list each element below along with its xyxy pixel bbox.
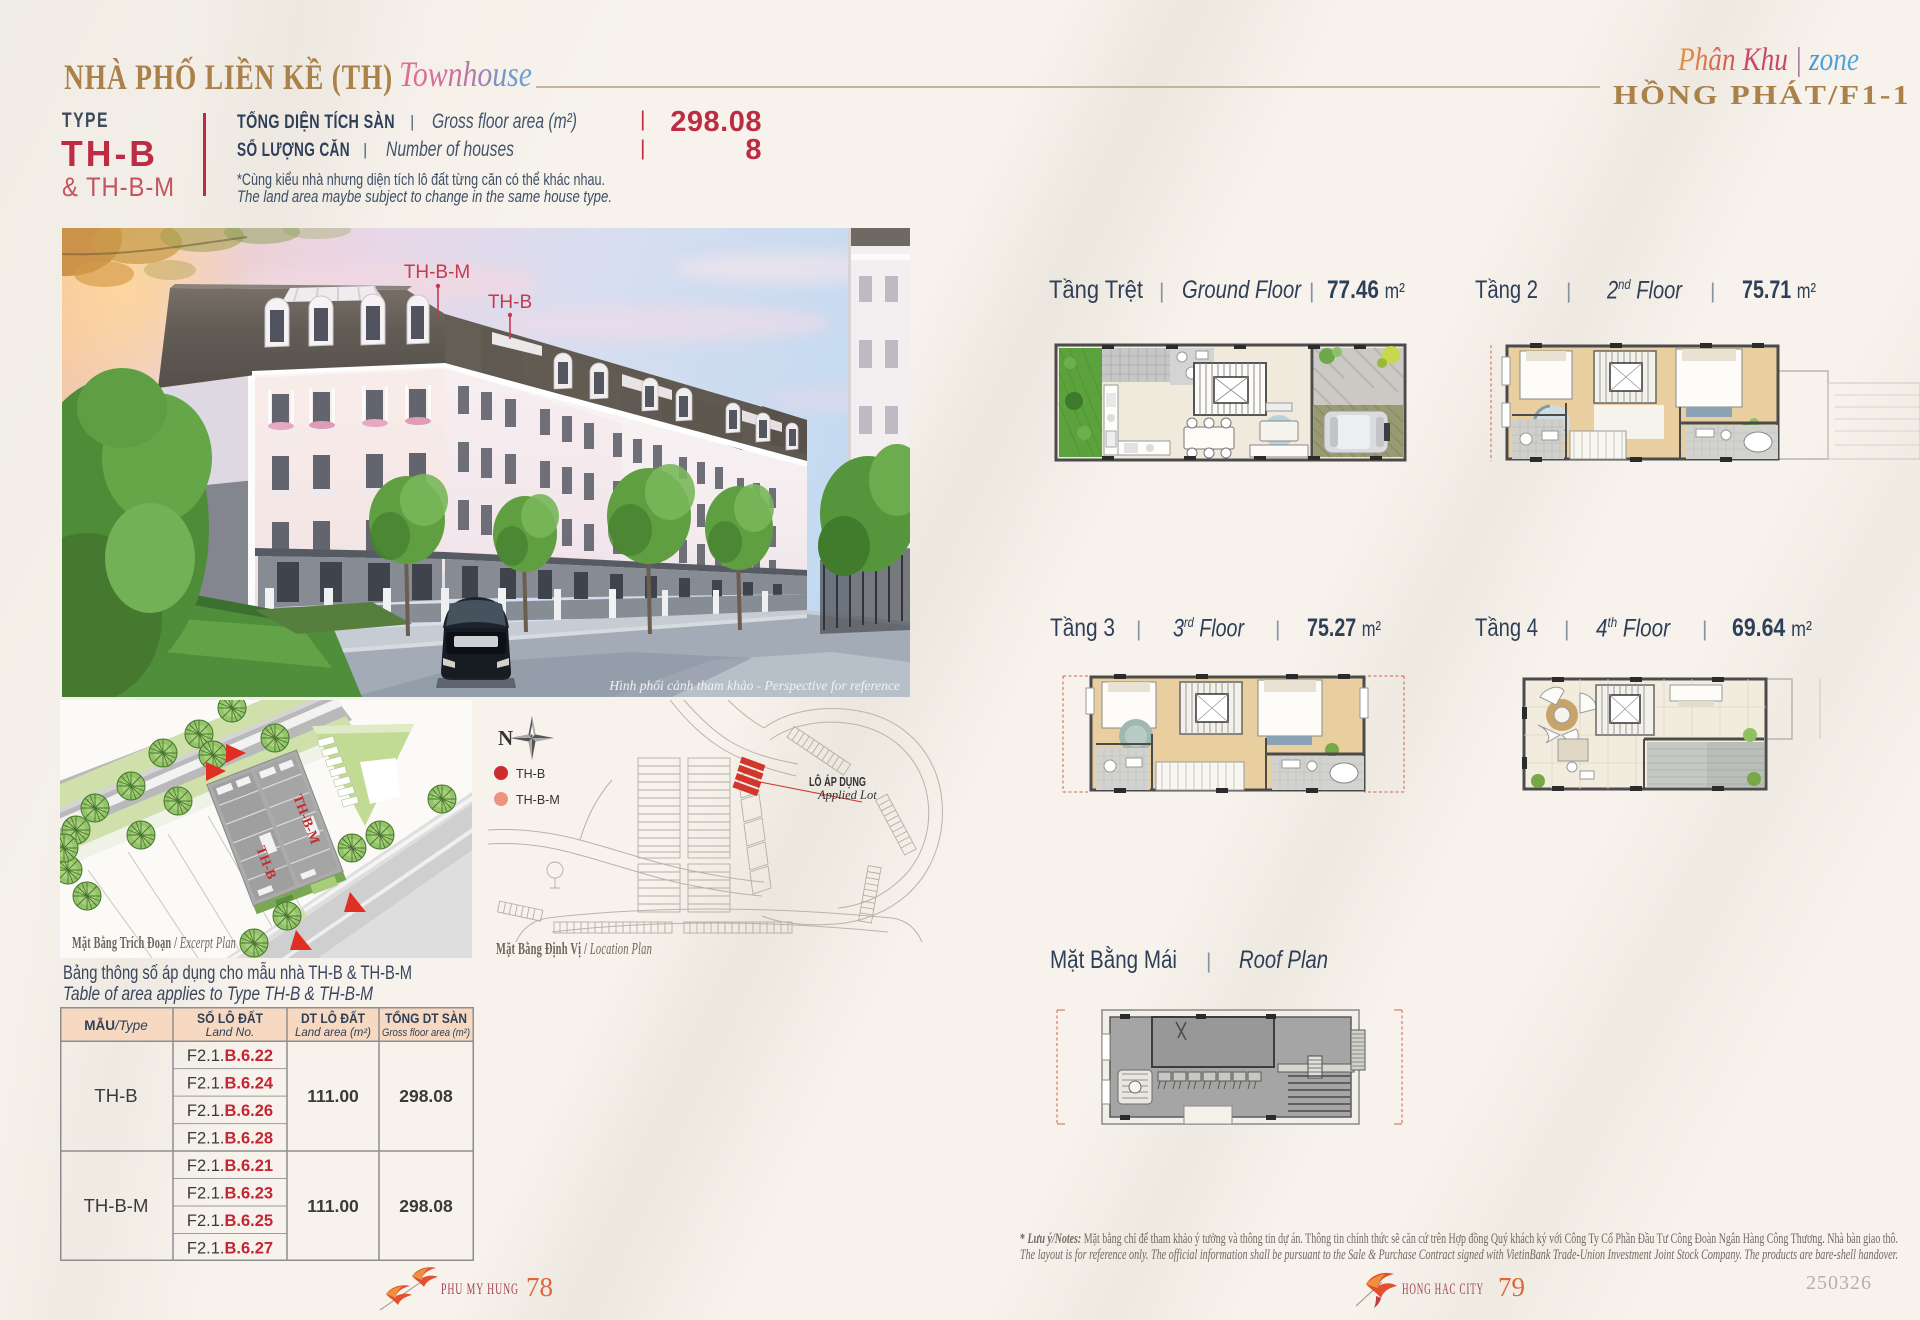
svg-text:F2.1.B.6.23: F2.1.B.6.23	[187, 1185, 273, 1203]
svg-text:TH-B-M: TH-B-M	[84, 1195, 149, 1216]
svg-text:298.08: 298.08	[399, 1196, 453, 1216]
svg-text:F2.1.B.6.27: F2.1.B.6.27	[187, 1240, 273, 1258]
svg-text:TH-B: TH-B	[516, 767, 545, 781]
svg-text:Hình phối cảnh tham khảo - Per: Hình phối cảnh tham khảo - Perspective f…	[608, 678, 900, 693]
svg-text:TH-B-M: TH-B-M	[404, 262, 470, 283]
svg-text:F2.1.B.6.28: F2.1.B.6.28	[187, 1130, 273, 1148]
svg-text:TH-B: TH-B	[488, 292, 532, 313]
svg-text:F2.1.B.6.26: F2.1.B.6.26	[187, 1102, 273, 1120]
svg-text:TH-B: TH-B	[94, 1085, 137, 1106]
svg-text:TH-B-M: TH-B-M	[516, 793, 560, 807]
svg-text:F2.1.B.6.21: F2.1.B.6.21	[187, 1157, 273, 1175]
svg-text:298.08: 298.08	[399, 1086, 453, 1106]
svg-text:Land No.: Land No.	[206, 1025, 255, 1039]
svg-text:SỐ LÔ ĐẤT: SỐ LÔ ĐẤT	[197, 1011, 264, 1026]
svg-text:Gross floor area (m²): Gross floor area (m²)	[382, 1027, 470, 1039]
svg-text:Land area (m²): Land area (m²)	[295, 1027, 371, 1039]
svg-text:MẪU/Type: MẪU/Type	[84, 1018, 148, 1033]
svg-text:LÔ ÁP DỤNG: LÔ ÁP DỤNG	[809, 774, 866, 789]
svg-text:F2.1.B.6.25: F2.1.B.6.25	[187, 1212, 273, 1230]
svg-text:111.00: 111.00	[307, 1196, 359, 1216]
svg-text:TỔNG DT SÀN: TỔNG DT SÀN	[385, 1011, 467, 1026]
svg-text:111.00: 111.00	[307, 1086, 359, 1106]
svg-text:F2.1.B.6.24: F2.1.B.6.24	[187, 1075, 274, 1093]
svg-text:F2.1.B.6.22: F2.1.B.6.22	[187, 1047, 273, 1065]
svg-text:Applied Lot: Applied Lot	[817, 788, 877, 802]
svg-text:DT LÔ ĐẤT: DT LÔ ĐẤT	[301, 1011, 366, 1026]
